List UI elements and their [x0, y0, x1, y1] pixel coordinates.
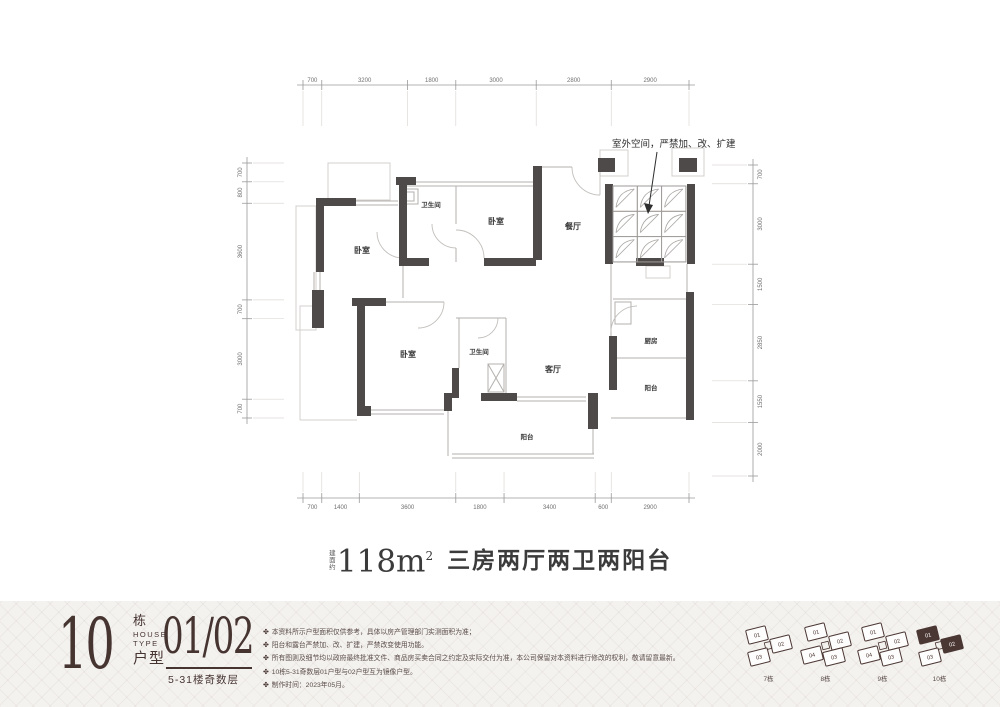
- outdoor-space-grid: [613, 186, 686, 262]
- site-map-core: [821, 641, 829, 649]
- flower-bullet-icon: ✤: [263, 655, 269, 662]
- site-map-unit: 03: [880, 648, 903, 666]
- dimension-label: 3200: [358, 78, 372, 84]
- room-label-bathroom-1: 卫生间: [421, 200, 441, 209]
- unit-underline: [166, 667, 252, 669]
- flower-bullet-icon: ✤: [263, 642, 269, 649]
- site-map-unit: 03: [919, 648, 942, 666]
- site-map-diagram-7: 010203: [740, 622, 797, 668]
- dimension-label: 700: [307, 78, 318, 84]
- dimension-label: 3600: [401, 505, 415, 511]
- dimension-label: 2850: [758, 335, 764, 349]
- disclaimer-item: ✤所有图则及细节均以政府最终批准文件、商品房买卖合同之约定及实际交付为准，本公司…: [263, 652, 680, 665]
- disclaimer-item: ✤制作时间：2023年05月。: [263, 679, 680, 692]
- dimension-label: 2900: [643, 78, 657, 84]
- site-map-label-7: 7栋: [740, 673, 797, 683]
- site-map-unit: 01: [917, 626, 940, 644]
- site-map-group: 010203 7栋 01020304 8栋 01020304 9栋 010203…: [740, 622, 968, 683]
- dimension-label: 3600: [238, 244, 244, 258]
- layout-descriptor: 三房两厅两卫两阳台: [447, 545, 672, 576]
- room-label-dining: 餐厅: [564, 221, 581, 231]
- site-map-building-7: 010203 7栋: [740, 622, 797, 683]
- annotation-text: 室外空间，严禁加、改、扩建: [612, 138, 736, 150]
- site-map-diagram-10: 010203: [911, 622, 968, 668]
- room-label-bathroom-2: 卫生间: [469, 347, 489, 356]
- dim-chain-left: 70080036007003000700: [238, 157, 284, 424]
- dim-chain-right: 70030001500285015502000: [712, 159, 764, 482]
- dim-chain-top: 70032001800300028002900: [297, 78, 695, 126]
- dimension-label: 2900: [643, 505, 657, 511]
- site-map-unit: 01: [746, 626, 769, 644]
- dimension-label: 700: [238, 403, 244, 414]
- building-number: 10: [58, 604, 113, 684]
- dimension-label: 1550: [758, 394, 764, 408]
- dimension-label: 800: [238, 187, 244, 198]
- disclaimer-item: ✤阳台和露台严禁加、改、扩建，严禁改变使用功能。: [263, 639, 680, 652]
- flower-bullet-icon: ✤: [263, 669, 269, 676]
- site-map-unit: 01: [805, 623, 828, 641]
- dimension-label: 700: [758, 169, 764, 180]
- floorplan-brochure-page: 7003200180030002800290070014003600180034…: [0, 0, 1000, 707]
- site-map-building-9: 01020304 9栋: [854, 622, 911, 683]
- disclaimer-text: 10栋5-31奇数层01户型与02户型互为镜像户型。: [272, 669, 417, 676]
- dimension-label: 1400: [334, 505, 348, 511]
- dimension-label: 3000: [238, 352, 244, 366]
- disclaimer-text: 制作时间：2023年05月。: [272, 682, 349, 689]
- dimension-label: 700: [238, 167, 244, 178]
- floors-label: 5-31楼奇数层: [168, 672, 239, 687]
- disclaimer-item: ✤本资料所示户型面积仅供参考，具体以房产管理部门实测面积为准；: [263, 626, 680, 639]
- dimension-label: 3400: [543, 505, 557, 511]
- room-label-balcony-bottom: 阳台: [521, 432, 535, 441]
- dimension-label: 2000: [758, 442, 764, 456]
- site-map-building-8: 01020304 8栋: [797, 622, 854, 683]
- site-map-core: [878, 641, 886, 649]
- site-map-unit: 04: [801, 646, 824, 664]
- disclaimer-list: ✤本资料所示户型面积仅供参考，具体以房产管理部门实测面积为准；✤阳台和露台严禁加…: [263, 626, 680, 692]
- site-map-unit: 03: [823, 648, 846, 666]
- site-map-label-10: 10栋: [911, 673, 968, 683]
- room-label-living: 客厅: [544, 364, 561, 374]
- dimension-label: 1500: [758, 277, 764, 291]
- site-map-diagram-9: 01020304: [854, 622, 911, 668]
- annotation-arrow-line: [649, 152, 657, 206]
- area-superscript: 2: [425, 549, 433, 563]
- room-label-kitchen: 厨房: [645, 336, 659, 345]
- site-map-unit: 02: [941, 635, 964, 653]
- dimension-label: 700: [307, 505, 318, 511]
- site-map-unit: 02: [829, 632, 852, 650]
- dimension-label: 1800: [473, 505, 487, 511]
- dimension-label: 3000: [758, 217, 764, 231]
- disclaimer-text: 所有图则及细节均以政府最终批准文件、商品房买卖合同之约定及实际交付为准，本公司保…: [272, 655, 680, 662]
- door-arcs: [377, 167, 637, 338]
- room-label-bedroom-2: 卧室: [488, 216, 504, 226]
- disclaimer-text: 本资料所示户型面积仅供参考，具体以房产管理部门实测面积为准；: [272, 629, 476, 636]
- site-map-label-9: 9栋: [854, 673, 911, 683]
- room-label-bedroom-1: 卧室: [354, 245, 370, 255]
- flower-bullet-icon: ✤: [263, 629, 269, 636]
- area-value: 118m2: [337, 541, 433, 576]
- disclaimer-text: 阳台和露台严禁加、改、扩建，严禁改变使用功能。: [272, 642, 428, 649]
- room-label-bedroom-3: 卧室: [400, 349, 416, 359]
- site-map-label-8: 8栋: [797, 673, 854, 683]
- dimension-label: 1800: [425, 78, 439, 84]
- site-map-unit: 02: [886, 632, 909, 650]
- flower-bullet-icon: ✤: [263, 682, 269, 689]
- dimension-label: 700: [238, 304, 244, 315]
- site-map-unit: 01: [862, 623, 885, 641]
- site-map-unit: 03: [748, 648, 771, 666]
- site-map-diagram-8: 01020304: [797, 622, 854, 668]
- disclaimer-item: ✤10栋5-31奇数层01户型与02户型互为镜像户型。: [263, 666, 680, 679]
- unit-numbers: 01/02: [162, 608, 253, 664]
- dimension-label: 3000: [489, 78, 503, 84]
- site-map-unit: 02: [770, 635, 793, 653]
- footer-band: 10 栋 HOUSE TYPE 户型 01/02 5-31楼奇数层 ✤本资料所示…: [0, 601, 1000, 707]
- area-prefix-label: 建面约: [328, 550, 337, 571]
- dimension-label: 2800: [567, 78, 581, 84]
- plan-title: 建面约 118m2 三房两厅两卫两阳台: [0, 541, 1000, 576]
- dimension-label: 600: [598, 505, 609, 511]
- site-map-unit: 04: [858, 646, 881, 664]
- dim-chain-bottom: 70014003600180034006002900: [297, 472, 695, 511]
- room-label-balcony-right: 阳台: [645, 383, 659, 392]
- annotation-arrowhead: [644, 203, 653, 214]
- site-map-building-10: 010203 10栋: [911, 622, 968, 683]
- area-number: 118m: [337, 543, 426, 579]
